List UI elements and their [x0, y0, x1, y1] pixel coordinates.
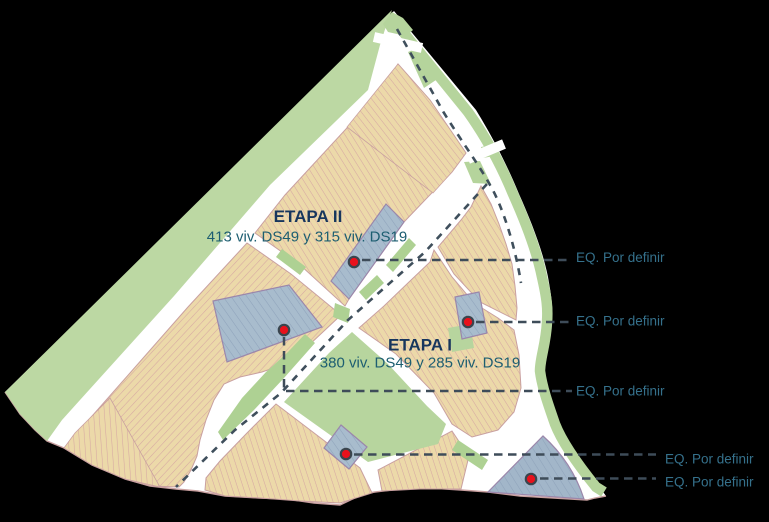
svg-text:EQ. Por definir: EQ. Por definir — [576, 384, 665, 399]
svg-text:EQ. Por definir: EQ. Por definir — [576, 250, 665, 265]
svg-text:413 viv. DS49 y 315 viv. DS19: 413 viv. DS49 y 315 viv. DS19 — [207, 229, 407, 246]
svg-text:380 viv. DS49 y 285 viv. DS19: 380 viv. DS49 y 285 viv. DS19 — [320, 355, 520, 372]
svg-text:EQ. Por definir: EQ. Por definir — [576, 314, 665, 329]
svg-text:ETAPA I: ETAPA I — [388, 336, 452, 355]
svg-text:EQ. Por definir: EQ. Por definir — [665, 475, 754, 490]
svg-text:ETAPA II: ETAPA II — [274, 207, 343, 226]
svg-text:EQ. Por definir: EQ. Por definir — [665, 452, 754, 467]
